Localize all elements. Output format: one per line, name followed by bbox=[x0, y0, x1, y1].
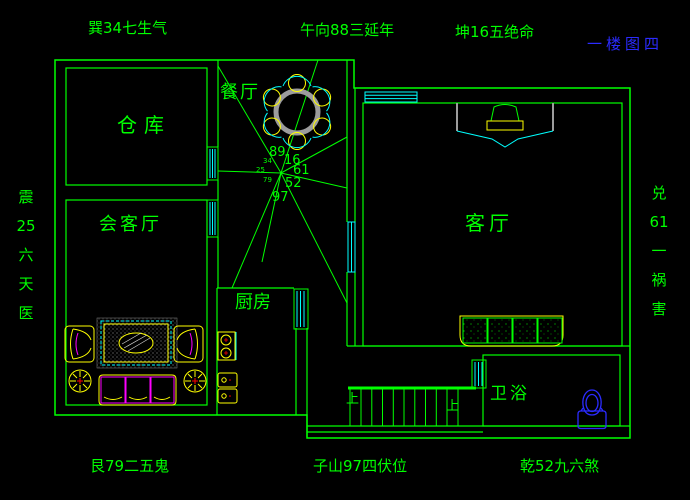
room-label-reception: 会客厅 bbox=[99, 216, 162, 234]
storeroom-window-icon bbox=[207, 147, 218, 180]
fengshui-label-zhen: 震 25 六 天 医 bbox=[13, 190, 39, 335]
fengshui-label-xun: 巽34七生气 bbox=[88, 21, 167, 36]
fengshui-label-gen: 艮79二五鬼 bbox=[90, 459, 169, 474]
living-top-window-icon bbox=[365, 92, 417, 102]
floorplan-canvas: 巽34七生气 午向88三延年 坤16五绝命 一楼图四 艮79二五鬼 子山97四伏… bbox=[0, 0, 690, 500]
stairs-up-label-right: 上 bbox=[446, 400, 459, 413]
armchair-right-icon bbox=[174, 326, 203, 362]
room-label-bathroom: 卫浴 bbox=[490, 386, 530, 403]
fengshui-label-zi: 子山97四伏位 bbox=[313, 459, 407, 474]
room-label-dining: 餐厅 bbox=[220, 84, 260, 102]
room-label-kitchen: 厨房 bbox=[235, 294, 271, 312]
drawing-title: 一楼图四 bbox=[587, 37, 663, 52]
reception-sofa-icon bbox=[99, 375, 176, 405]
living-left-window-icon bbox=[348, 222, 355, 272]
compass-number-25: 25 bbox=[256, 167, 265, 174]
room-label-storeroom: 仓库 bbox=[117, 115, 171, 135]
armchair-left-icon bbox=[65, 326, 94, 362]
reception-window-icon bbox=[207, 200, 218, 237]
fengshui-label-dui: 兑 61 一 祸 害 bbox=[646, 186, 672, 331]
compass-number-34: 34 bbox=[263, 158, 272, 165]
compass-number-79: 79 bbox=[263, 177, 272, 184]
room-label-living: 客厅 bbox=[465, 213, 513, 233]
sink-icon bbox=[218, 373, 237, 403]
fengshui-label-qian: 乾52九六煞 bbox=[520, 459, 599, 474]
fengshui-label-kun: 坤16五绝命 bbox=[455, 25, 534, 40]
living-sofa-icon bbox=[460, 316, 563, 346]
rug-icon bbox=[97, 318, 177, 368]
plant-left-icon bbox=[69, 370, 91, 392]
bathroom-door-icon bbox=[472, 360, 486, 388]
dining-table-icon bbox=[258, 75, 337, 150]
compass-number-97: 97 bbox=[272, 191, 289, 204]
plant-right-icon bbox=[184, 370, 206, 392]
stairs-up-label-left: 上 bbox=[346, 393, 359, 406]
tv-cabinet-icon bbox=[457, 103, 553, 147]
stove-icon bbox=[218, 332, 236, 360]
toilet-icon bbox=[578, 390, 606, 429]
compass-number-52: 52 bbox=[285, 177, 302, 190]
floorplan-drawing bbox=[0, 0, 690, 500]
fengshui-label-wu: 午向88三延年 bbox=[300, 23, 394, 38]
kitchen-door-icon bbox=[294, 289, 308, 329]
